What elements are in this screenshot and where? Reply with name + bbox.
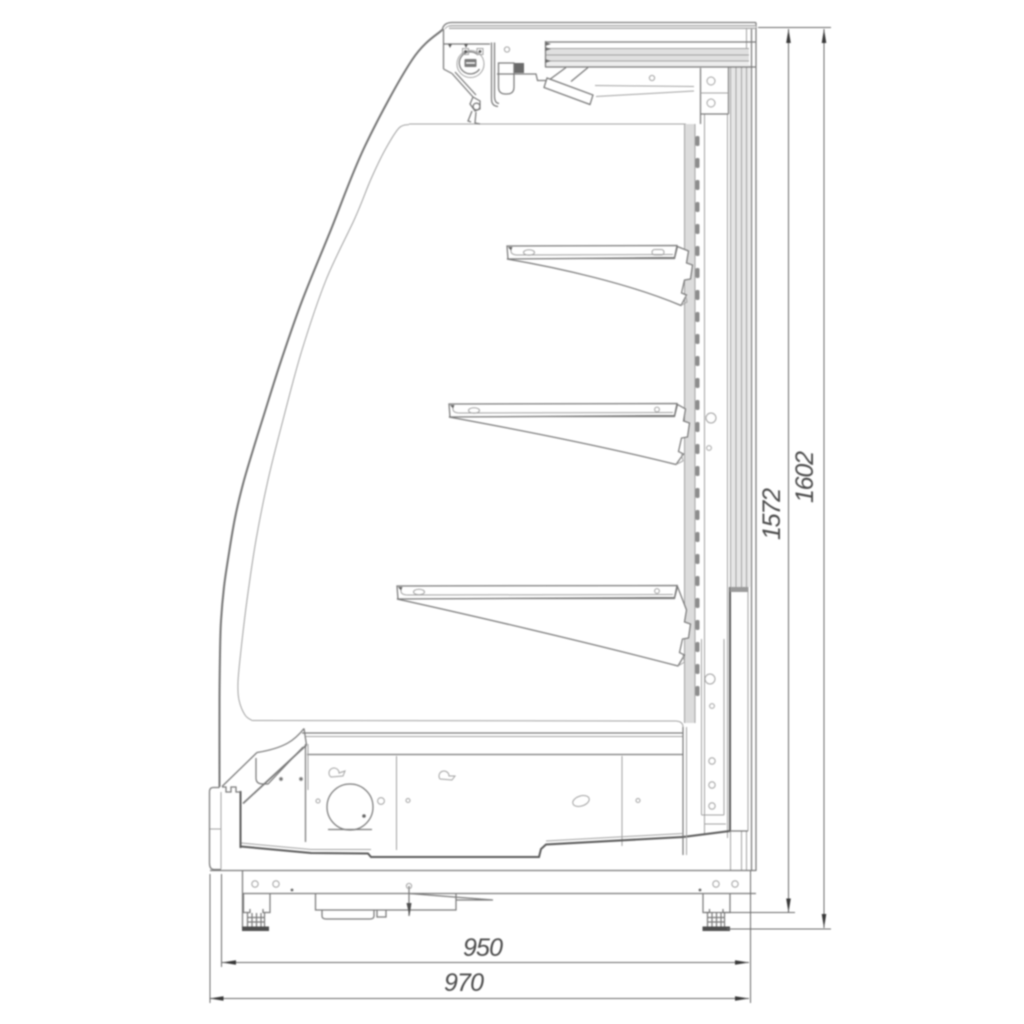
svg-text:950: 950 — [463, 934, 503, 962]
svg-text:1572: 1572 — [758, 488, 786, 540]
svg-text:1602: 1602 — [791, 451, 819, 503]
svg-text:970: 970 — [444, 969, 484, 997]
